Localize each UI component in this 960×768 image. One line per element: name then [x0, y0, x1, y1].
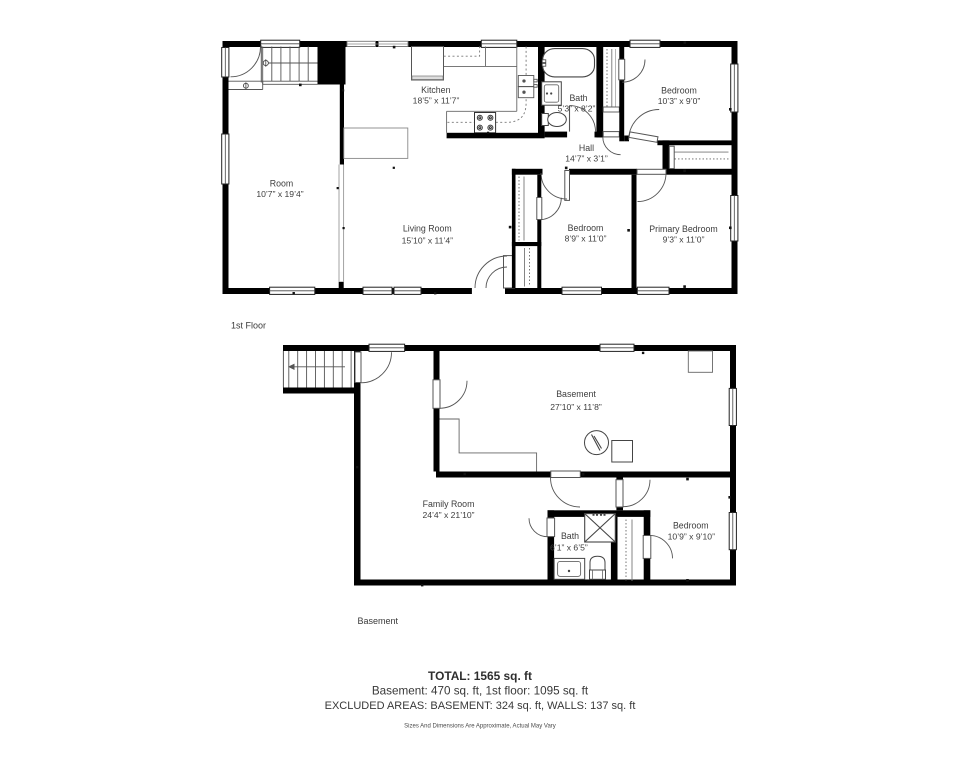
svg-text:Room: Room [270, 178, 293, 188]
svg-text:9’3” x 11’0”: 9’3” x 11’0” [663, 235, 705, 245]
svg-text:Hall: Hall [579, 143, 594, 153]
svg-text:10’9” x 9’10”: 10’9” x 9’10” [668, 531, 715, 541]
svg-text:Primary Bedroom: Primary Bedroom [649, 224, 717, 234]
svg-text:Bath: Bath [569, 93, 587, 103]
svg-text:Kitchen: Kitchen [421, 85, 450, 95]
svg-text:EXCLUDED AREAS: BASEMENT: 324: EXCLUDED AREAS: BASEMENT: 324 sq. ft, WA… [325, 700, 636, 712]
svg-text:24’4” x 21’10”: 24’4” x 21’10” [422, 510, 474, 520]
svg-text:Bedroom: Bedroom [673, 520, 709, 530]
svg-text:18’5” x 11’7”: 18’5” x 11’7” [413, 96, 460, 106]
svg-text:Basement: Basement [358, 616, 399, 626]
svg-text:27’10” x 11’8”: 27’10” x 11’8” [550, 402, 602, 412]
svg-text:10’7” x 19’4”: 10’7” x 19’4” [256, 189, 303, 199]
svg-text:Bedroom: Bedroom [568, 223, 604, 233]
svg-text:Bath: Bath [561, 531, 579, 541]
svg-text:6’1” x 6’5”: 6’1” x 6’5” [550, 542, 588, 552]
svg-text:Basement: Basement [556, 389, 596, 399]
svg-text:1st Floor: 1st Floor [231, 321, 266, 331]
svg-text:15’10” x 11’4”: 15’10” x 11’4” [402, 236, 454, 246]
svg-text:10’3” x 9’0”: 10’3” x 9’0” [658, 96, 701, 106]
svg-text:TOTAL: 1565 sq. ft: TOTAL: 1565 sq. ft [428, 669, 532, 683]
svg-text:Basement: 470 sq. ft, 1st floo: Basement: 470 sq. ft, 1st floor: 1095 sq… [372, 685, 589, 698]
svg-text:Sizes And Dimensions Are Appro: Sizes And Dimensions Are Approximate, Ac… [404, 724, 556, 730]
svg-text:Bedroom: Bedroom [661, 86, 697, 96]
svg-text:14’7” x 3’1”: 14’7” x 3’1” [565, 154, 608, 164]
svg-text:8’9” x 11’0”: 8’9” x 11’0” [565, 234, 607, 244]
svg-text:Family Room: Family Room [423, 499, 475, 509]
svg-text:5’3” x 8’2”: 5’3” x 8’2” [558, 104, 596, 114]
svg-text:Living Room: Living Room [403, 224, 452, 234]
